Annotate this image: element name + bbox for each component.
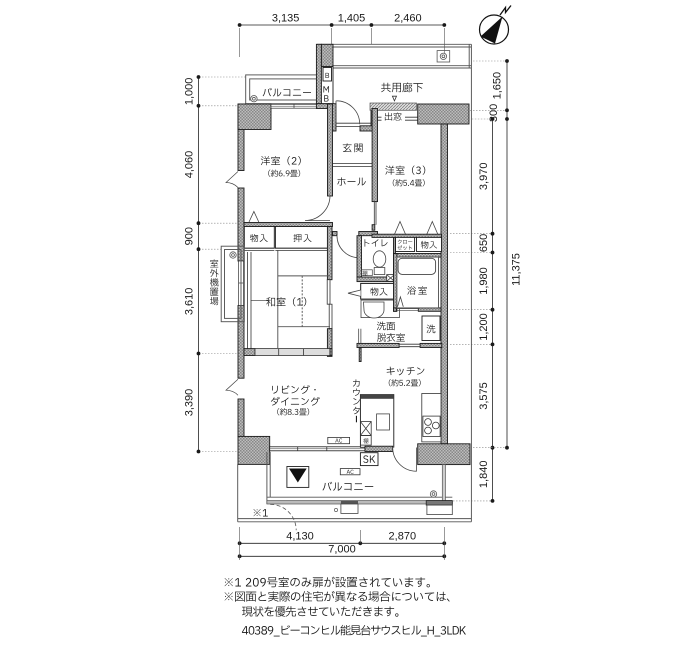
svg-text:650: 650 bbox=[478, 234, 490, 252]
svg-text:1,000: 1,000 bbox=[184, 78, 196, 106]
svg-text:7,000: 7,000 bbox=[328, 544, 356, 556]
svg-text:3,610: 3,610 bbox=[184, 288, 196, 316]
svg-text:3,575: 3,575 bbox=[478, 382, 490, 410]
svg-text:300: 300 bbox=[488, 104, 500, 122]
svg-text:4,130: 4,130 bbox=[286, 531, 314, 543]
svg-text:1,405: 1,405 bbox=[338, 13, 366, 25]
svg-text:2,870: 2,870 bbox=[389, 531, 417, 543]
svg-text:2,460: 2,460 bbox=[394, 13, 422, 25]
svg-text:1,980: 1,980 bbox=[478, 267, 490, 295]
svg-text:3,390: 3,390 bbox=[184, 389, 196, 417]
svg-text:1,650: 1,650 bbox=[492, 72, 504, 100]
svg-text:4,060: 4,060 bbox=[184, 151, 196, 179]
svg-text:1,840: 1,840 bbox=[478, 461, 490, 489]
svg-text:1,200: 1,200 bbox=[478, 313, 490, 341]
svg-text:3,970: 3,970 bbox=[478, 163, 490, 191]
svg-text:11,375: 11,375 bbox=[511, 253, 523, 286]
svg-text:3,135: 3,135 bbox=[272, 13, 300, 25]
svg-text:900: 900 bbox=[184, 227, 196, 245]
